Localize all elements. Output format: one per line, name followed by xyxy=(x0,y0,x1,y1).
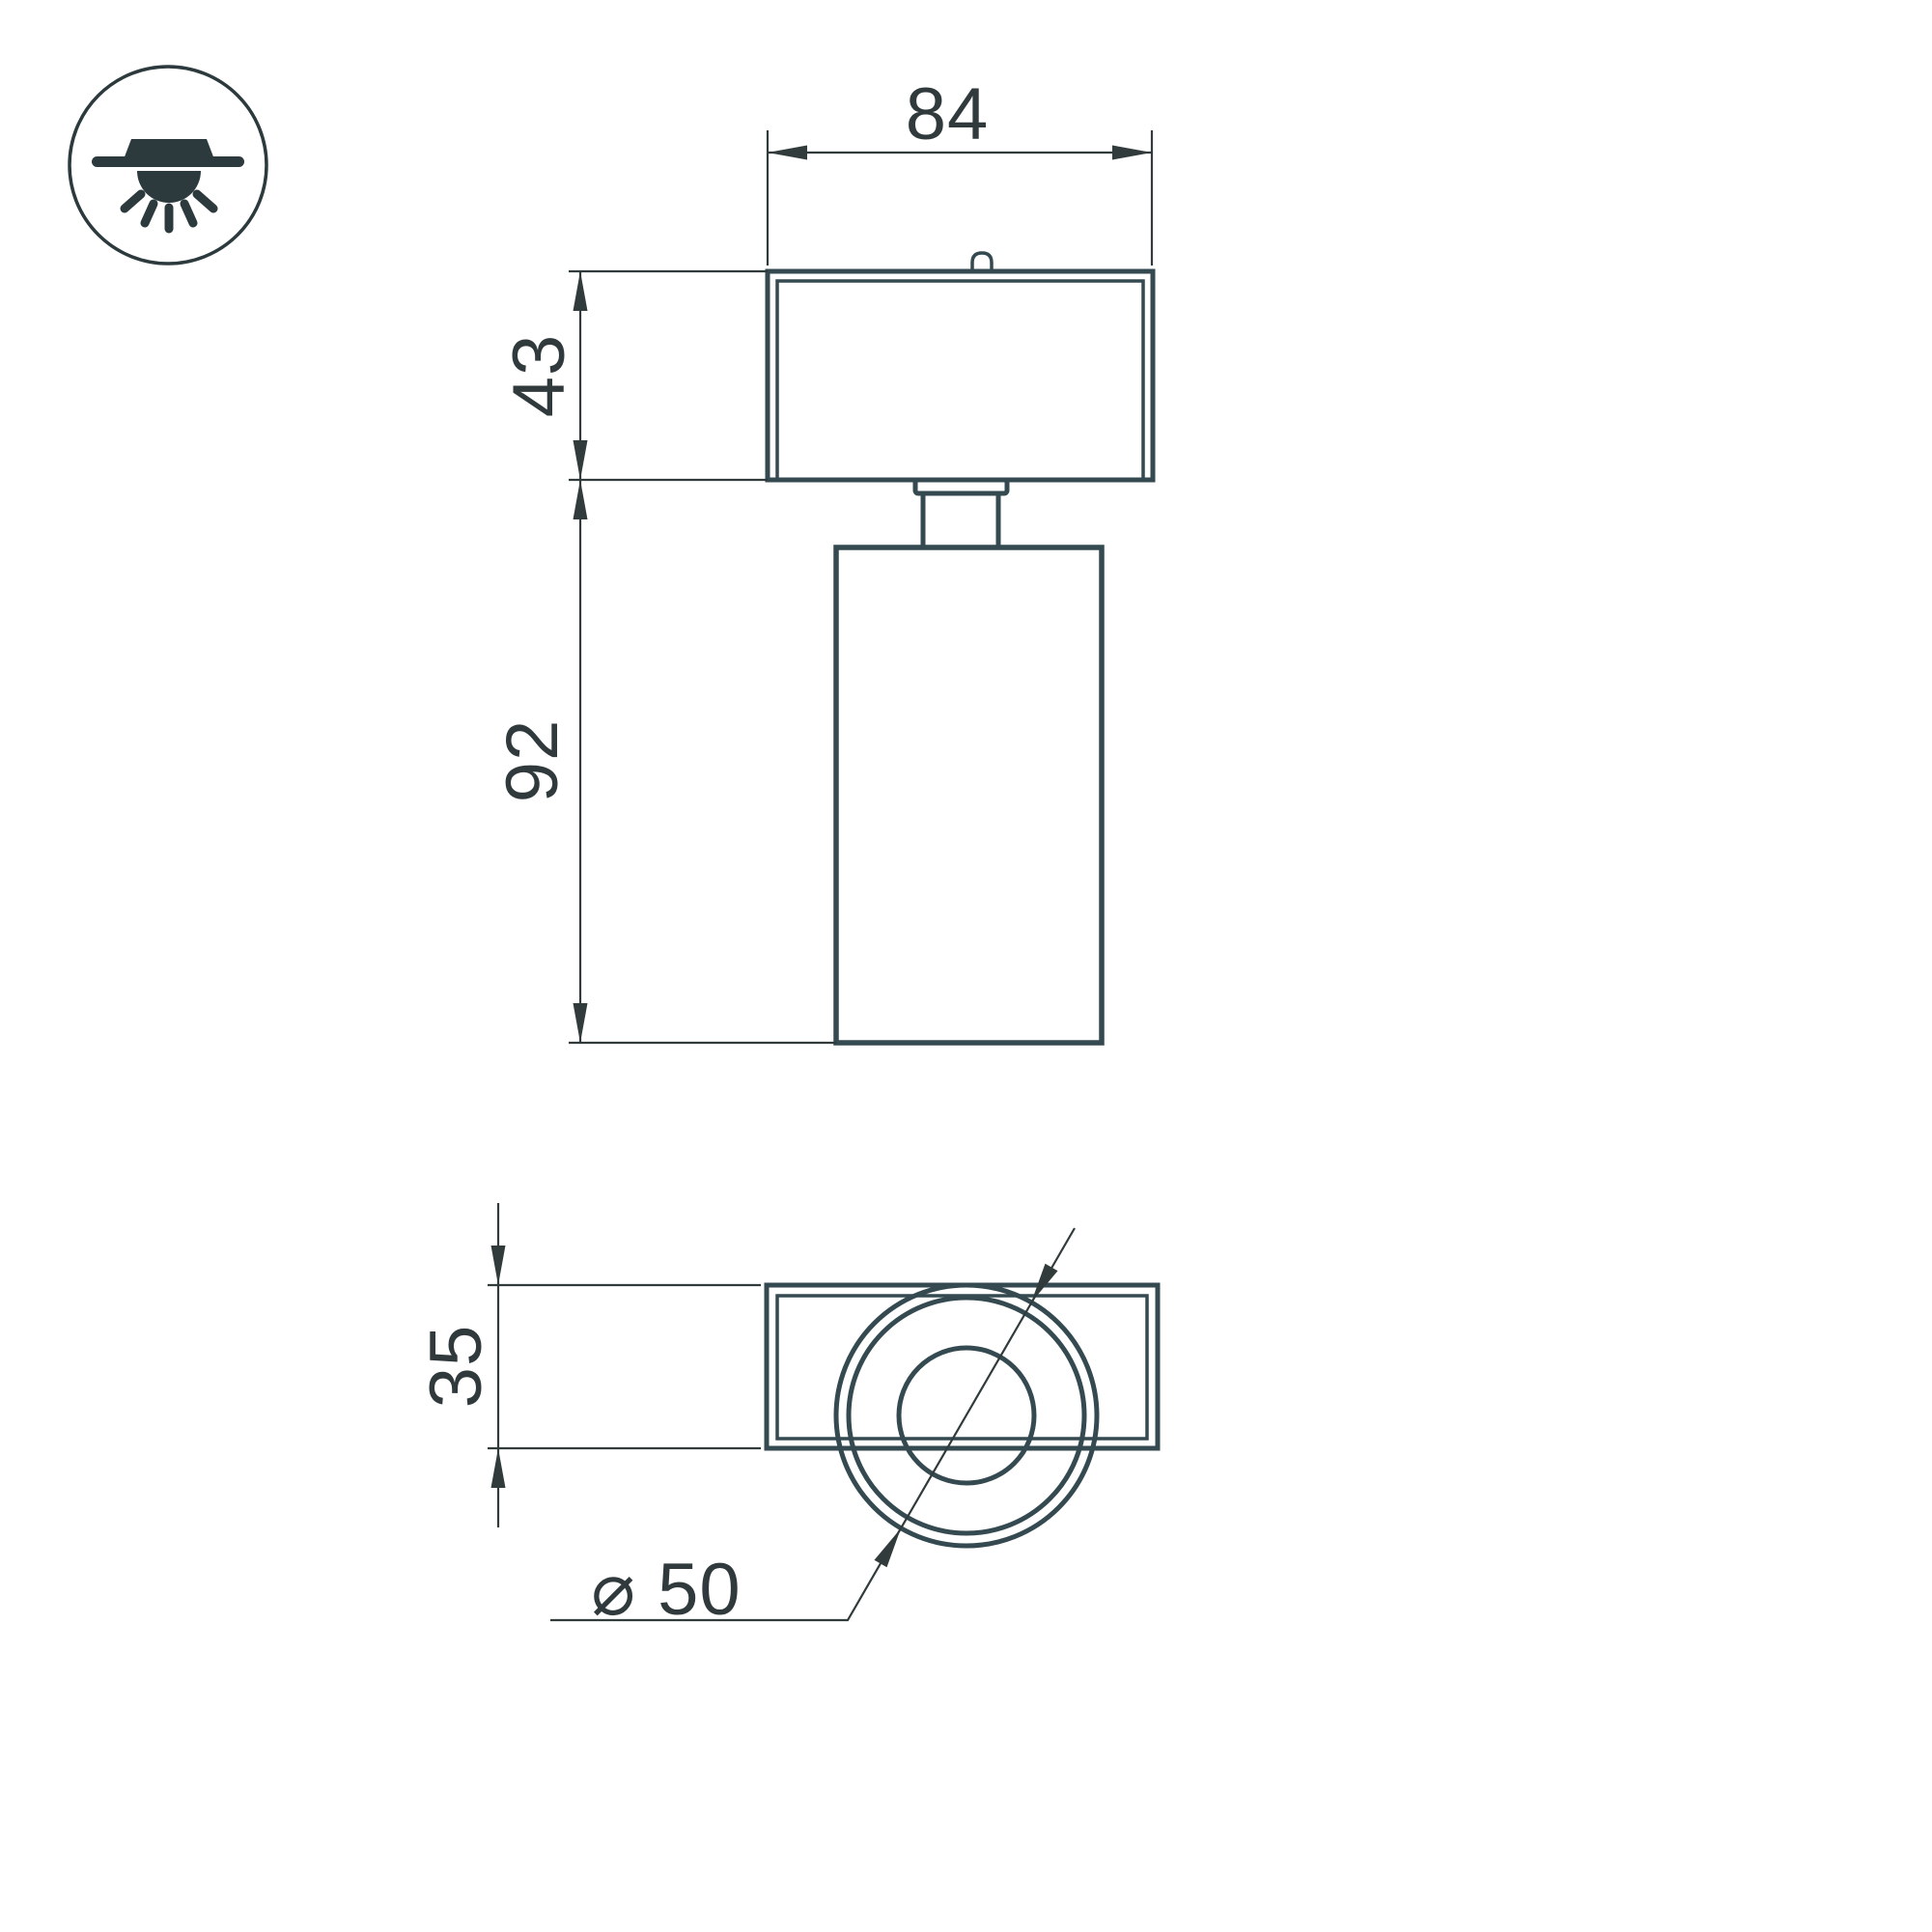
surface-mounted-ceiling-light-icon xyxy=(70,67,266,264)
arrowhead xyxy=(1112,146,1152,160)
dim-label-head-height: 43 xyxy=(498,334,580,418)
bottom-dimensions: 35 ⌀ 50 xyxy=(415,1203,1075,1631)
arrowhead xyxy=(574,440,588,480)
icon-light-ray xyxy=(125,194,141,209)
arrowhead xyxy=(875,1528,902,1567)
icon-ceiling-line xyxy=(92,156,244,167)
arrowhead xyxy=(491,1448,506,1488)
dim-label-depth: 35 xyxy=(415,1325,497,1409)
dim-label-diameter: ⌀ 50 xyxy=(591,1549,741,1631)
bottom-view xyxy=(767,1285,1158,1546)
arrowhead xyxy=(491,1246,506,1285)
icon-light-ray xyxy=(184,204,193,223)
arrowhead xyxy=(574,1003,588,1043)
arrowhead xyxy=(574,271,588,311)
technical-drawing-page: 84 43 92 35 ⌀ 50 xyxy=(0,0,1932,1932)
front-view xyxy=(768,253,1153,1043)
icon-fixture-body xyxy=(124,139,214,159)
dim-label-width: 84 xyxy=(906,73,990,155)
luminaire-dimension-drawing: 84 43 92 35 ⌀ 50 xyxy=(0,0,1932,1932)
arrowhead xyxy=(574,480,588,519)
icon-lamp-dome xyxy=(137,171,201,203)
front-head-inner xyxy=(777,281,1143,480)
icon-light-ray xyxy=(197,194,213,209)
dim-label-body-height: 92 xyxy=(491,719,574,803)
front-head-outer xyxy=(768,271,1153,480)
icon-light-ray xyxy=(145,204,154,223)
bottom-plate-inner xyxy=(777,1296,1147,1439)
arrowhead xyxy=(768,146,807,160)
front-cylinder-body xyxy=(836,547,1102,1043)
front-stem xyxy=(923,493,998,547)
